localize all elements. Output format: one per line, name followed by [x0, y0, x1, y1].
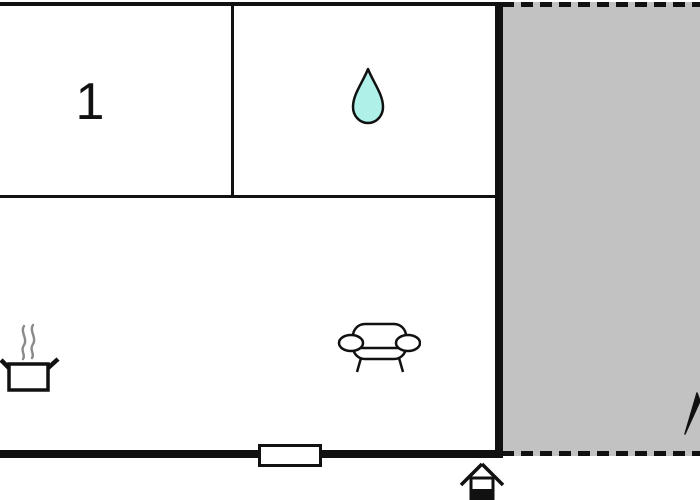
room-1-label: 1 [62, 74, 118, 130]
water-drop-icon [348, 66, 388, 126]
terrace-dashed-border-top [502, 2, 700, 7]
steam-line [32, 325, 35, 358]
door-window-marker [258, 444, 322, 467]
floor-plan: 1 [0, 0, 700, 500]
terrace-dashed-border-bottom [502, 451, 700, 456]
wall-bottom [0, 450, 503, 458]
sofa-icon [337, 317, 421, 375]
wall-partition-vertical [231, 2, 234, 196]
entrance-house-icon [458, 461, 506, 500]
steam-line [23, 326, 26, 359]
wall-right [495, 2, 503, 457]
wall-top [0, 2, 502, 6]
terrace-area [502, 2, 700, 456]
cooking-pot-icon [0, 320, 62, 395]
north-arrow-icon [677, 390, 700, 440]
wall-partition-horizontal [0, 195, 497, 198]
